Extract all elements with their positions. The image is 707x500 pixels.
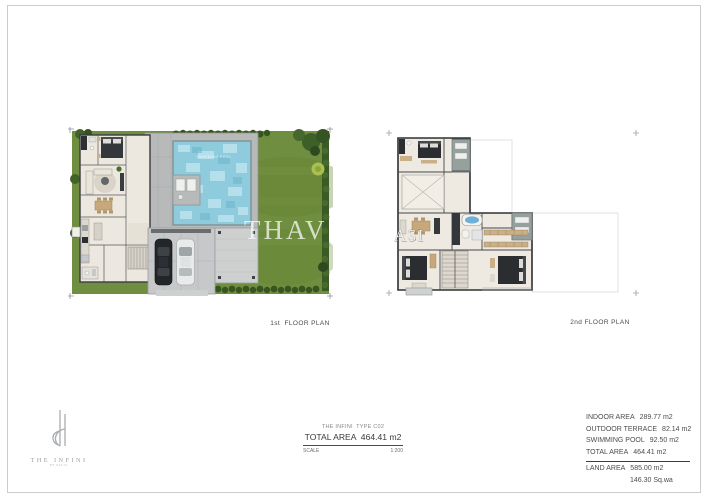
scale-label: SCALE bbox=[303, 448, 319, 454]
area-value: 92.50 m2 bbox=[650, 437, 679, 444]
infini-monogram-icon bbox=[46, 407, 72, 449]
brand-tagline: BY PATTA bbox=[40, 464, 78, 467]
stairs bbox=[128, 247, 149, 269]
area-row-total: TOTAL AREA 464.41 m2 bbox=[586, 449, 694, 461]
open-to-below bbox=[402, 175, 444, 209]
second-floor-plan-drawing bbox=[386, 128, 639, 298]
area-value: 585.00 m2 bbox=[630, 465, 663, 472]
area-label: INDOOR AREA bbox=[586, 414, 635, 421]
first-floor-plan: SWIMMING POOL bbox=[68, 127, 333, 299]
gate-pad bbox=[72, 227, 80, 237]
total-area-line: TOTAL AREA 464.41 m2 bbox=[303, 432, 403, 442]
second-floor-plan: ASI bbox=[386, 128, 639, 298]
title-block-rule bbox=[303, 445, 403, 446]
area-label: OUTDOOR TERRACE bbox=[586, 426, 657, 433]
foyer bbox=[128, 223, 149, 244]
swimming-pool: SWIMMING POOL bbox=[173, 141, 251, 225]
area-row-terrace: OUTDOOR TERRACE 82.14 m2 bbox=[586, 426, 694, 438]
land-area-sqwa: 146.30 Sq.wa bbox=[586, 477, 694, 489]
area-label: SWIMMING POOL bbox=[586, 437, 645, 444]
terrace-right bbox=[512, 213, 532, 240]
pool-label: SWIMMING POOL bbox=[197, 155, 232, 159]
brand-name: THE INFINI bbox=[22, 457, 96, 464]
powder-room bbox=[82, 267, 98, 279]
house-first-floor bbox=[80, 135, 150, 282]
terrace-upper bbox=[452, 139, 470, 172]
scale-value: 1:200 bbox=[390, 448, 403, 454]
area-summary-rule bbox=[586, 461, 690, 462]
area-value: 289.77 m2 bbox=[640, 414, 673, 421]
entry-walk bbox=[156, 290, 208, 296]
car-white bbox=[177, 239, 195, 285]
area-row-pool: SWIMMING POOL 92.50 m2 bbox=[586, 437, 694, 449]
pool-lounger-pad bbox=[173, 175, 200, 205]
stairs bbox=[442, 251, 468, 288]
carport bbox=[148, 228, 215, 294]
pergola-terrace bbox=[215, 228, 258, 283]
title-block: THE INFINI TYPE C02 TOTAL AREA 464.41 m2… bbox=[303, 424, 403, 454]
project-type-line: THE INFINI TYPE C02 bbox=[303, 424, 403, 430]
dining-area bbox=[95, 198, 113, 214]
area-label: TOTAL AREA bbox=[586, 449, 628, 456]
second-floor-caption: 2nd FLOOR PLAN bbox=[540, 319, 660, 326]
first-floor-plan-drawing: SWIMMING POOL bbox=[68, 127, 333, 299]
car-dark bbox=[155, 239, 172, 285]
area-row-land: LAND AREA 585.00 m2 bbox=[586, 465, 694, 477]
first-floor-caption: 1st FLOOR PLAN bbox=[240, 320, 360, 327]
area-label: LAND AREA bbox=[586, 465, 625, 472]
area-value: 464.41 m2 bbox=[633, 449, 666, 456]
area-value: 82.14 m2 bbox=[662, 426, 691, 433]
area-row-indoor: INDOOR AREA 289.77 m2 bbox=[586, 414, 694, 426]
brand-logo: THE INFINI BY PATTA bbox=[22, 407, 96, 470]
area-summary-table: INDOOR AREA 289.77 m2 OUTDOOR TERRACE 82… bbox=[586, 414, 694, 488]
drawing-sheet: { "plans": { "first": { "caption": "1st … bbox=[0, 0, 707, 500]
